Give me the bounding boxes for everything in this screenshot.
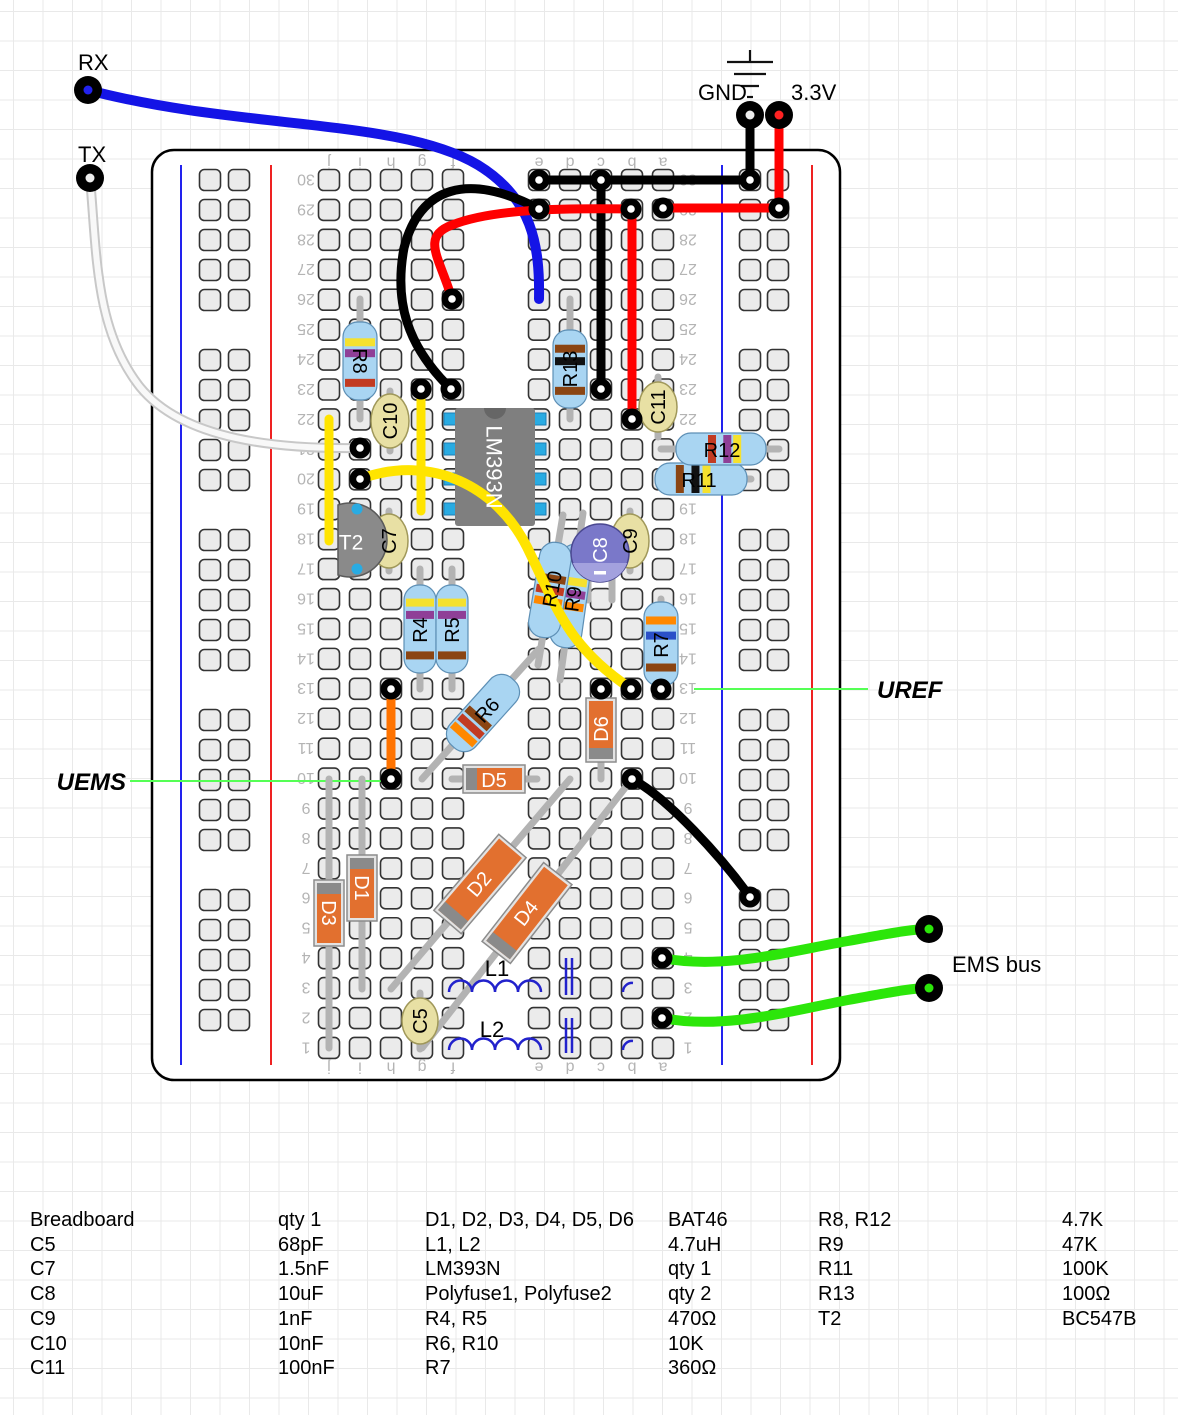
breadboard-hole <box>768 890 789 911</box>
breadboard-hole <box>591 618 612 639</box>
cathode-band <box>466 768 477 790</box>
breadboard-hole <box>653 768 674 789</box>
breadboard-hole <box>740 530 761 551</box>
svg-text:L2: L2 <box>480 1017 504 1042</box>
breadboard-hole <box>768 980 789 1001</box>
row-number-left: 8 <box>301 829 310 846</box>
breadboard-hole <box>229 350 250 371</box>
breadboard-hole <box>529 948 550 969</box>
row-number-right: 28 <box>679 230 697 247</box>
breadboard-hole <box>229 470 250 491</box>
wire-end-ring <box>529 199 550 220</box>
breadboard-hole <box>591 439 612 460</box>
tx-pin <box>76 164 104 192</box>
row-number-right: 13 <box>679 679 697 696</box>
breadboard-hole <box>350 589 371 610</box>
svg-text:C7: C7 <box>379 528 401 554</box>
breadboard-hole <box>381 349 402 370</box>
breadboard-hole <box>560 738 581 759</box>
breadboard-hole <box>768 710 789 731</box>
breadboard-hole <box>768 410 789 431</box>
breadboard-hole <box>381 1008 402 1029</box>
breadboard-hole <box>443 319 464 340</box>
breadboard-hole <box>319 259 340 280</box>
breadboard-hole <box>653 1037 674 1058</box>
breadboard-hole <box>200 560 221 581</box>
row-number-right: 15 <box>679 619 697 636</box>
row-number-left: 12 <box>297 709 315 726</box>
row-number-right: 17 <box>679 559 697 576</box>
breadboard-hole <box>529 379 550 400</box>
wire-end-ring <box>740 887 761 908</box>
breadboard-hole <box>622 589 643 610</box>
breadboard-hole <box>229 380 250 401</box>
breadboard-hole <box>653 229 674 250</box>
breadboard-hole <box>768 380 789 401</box>
breadboard-hole <box>381 888 402 909</box>
breadboard-hole <box>200 230 221 251</box>
breadboard-hole <box>412 259 433 280</box>
breadboard-hole <box>591 978 612 999</box>
breadboard-hole <box>768 740 789 761</box>
breadboard-hole <box>529 1008 550 1029</box>
breadboard-hole <box>229 950 250 971</box>
svg-text:C5: C5 <box>410 1008 432 1034</box>
gnd-pin <box>736 101 764 129</box>
breadboard-hole <box>229 980 250 1001</box>
wire-end-ring <box>622 409 643 430</box>
wire-end-ring <box>350 438 371 459</box>
breadboard-hole <box>381 589 402 610</box>
wire-end-ring <box>411 379 432 400</box>
breadboard-hole <box>653 349 674 370</box>
column-letter-top: j <box>327 153 332 170</box>
wire-end-ring <box>591 170 612 191</box>
breadboard-hole <box>740 830 761 851</box>
row-number-right: 5 <box>683 919 692 936</box>
breadboard-hole <box>350 708 371 729</box>
breadboard-hole <box>768 230 789 251</box>
svg-text:D6: D6 <box>591 716 613 742</box>
svg-text:R11: R11 <box>681 470 716 492</box>
breadboard-hole <box>768 260 789 281</box>
row-number-right: 7 <box>683 859 692 876</box>
breadboard-hole <box>200 920 221 941</box>
breadboard-hole <box>229 230 250 251</box>
column-letter-top: d <box>566 153 575 170</box>
svg-text:R8: R8 <box>348 348 370 374</box>
ems-pin-1 <box>915 915 943 943</box>
row-number-left: 15 <box>297 619 315 636</box>
row-number-right: 10 <box>679 769 697 786</box>
breadboard-hole <box>622 948 643 969</box>
breadboard-hole <box>229 830 250 851</box>
breadboard-hole <box>229 530 250 551</box>
column-letter-bottom: h <box>387 1058 396 1075</box>
breadboard-hole <box>591 589 612 610</box>
breadboard-hole <box>653 918 674 939</box>
breadboard-hole <box>350 170 371 191</box>
breadboard-hole <box>768 770 789 791</box>
row-number-right: 1 <box>683 1038 692 1055</box>
svg-text:D1: D1 <box>350 875 372 901</box>
breadboard-hole <box>768 800 789 821</box>
breadboard-hole <box>653 289 674 310</box>
column-letter-bottom: e <box>534 1058 543 1075</box>
column-letter-top: g <box>418 153 427 170</box>
label-L1: L1 <box>485 956 509 981</box>
row-number-left: 28 <box>297 230 315 247</box>
breadboard-hole <box>622 858 643 879</box>
row-number-left: 14 <box>297 649 315 666</box>
label-R5: R5 <box>442 617 464 643</box>
breadboard-hole <box>350 259 371 280</box>
breadboard-hole <box>529 678 550 699</box>
breadboard-hole <box>412 738 433 759</box>
label-C9: C9 <box>620 528 642 554</box>
ems-pin-2 <box>915 974 943 1002</box>
breadboard-hole <box>740 290 761 311</box>
label-R7: R7 <box>651 632 673 658</box>
breadboard-hole <box>319 170 340 191</box>
breadboard-hole <box>200 290 221 311</box>
breadboard-hole <box>443 858 464 879</box>
breadboard-hole <box>622 708 643 729</box>
breadboard-hole <box>443 199 464 220</box>
svg-text:C8: C8 <box>590 537 612 563</box>
breadboard-hole <box>229 1010 250 1031</box>
row-number-left: 20 <box>297 470 315 487</box>
row-number-right: 14 <box>679 649 697 666</box>
breadboard-hole <box>319 678 340 699</box>
row-number-left: 17 <box>297 559 315 576</box>
breadboard-hole <box>200 170 221 191</box>
svg-text:UEMS: UEMS <box>57 769 126 796</box>
breadboard-hole <box>200 470 221 491</box>
svg-text:GND: GND <box>698 80 747 105</box>
row-number-right: 18 <box>679 530 697 547</box>
breadboard-hole <box>350 1037 371 1058</box>
breadboard-hole <box>768 560 789 581</box>
wire-end-ring <box>529 170 550 191</box>
breadboard-hole <box>200 620 221 641</box>
breadboard-hole <box>740 620 761 641</box>
label-D3: D3 <box>317 900 339 926</box>
breadboard-hole <box>653 978 674 999</box>
row-number-left: 27 <box>297 260 315 277</box>
breadboard-hole <box>560 918 581 939</box>
svg-text:T2: T2 <box>339 531 364 554</box>
breadboard-hole <box>740 350 761 371</box>
svg-text:LM393N: LM393N <box>481 425 506 508</box>
label-R8: R8 <box>348 348 370 374</box>
breadboard-hole <box>740 410 761 431</box>
breadboard-hole <box>740 770 761 791</box>
breadboard-hole <box>768 650 789 671</box>
row-number-left: 22 <box>297 410 315 427</box>
row-number-left: 26 <box>297 290 315 307</box>
breadboard-hole <box>200 980 221 1001</box>
breadboard-hole <box>200 380 221 401</box>
label-C11: C11 <box>648 389 670 424</box>
breadboard-hole <box>381 199 402 220</box>
breadboard-hole <box>560 469 581 490</box>
breadboard-hole <box>200 200 221 221</box>
wire-end-ring <box>621 679 642 700</box>
breadboard-hole <box>412 289 433 310</box>
breadboard-hole <box>229 800 250 821</box>
breadboard-hole <box>740 800 761 821</box>
svg-text:R7: R7 <box>651 632 673 658</box>
breadboard-hole <box>622 439 643 460</box>
row-number-left: 19 <box>297 500 315 517</box>
label-UEMS: UEMS <box>57 769 126 796</box>
breadboard-hole <box>529 738 550 759</box>
breadboard-hole <box>381 229 402 250</box>
breadboard-hole <box>653 529 674 550</box>
label-UREF: UREF <box>877 677 944 704</box>
breadboard-hole <box>768 590 789 611</box>
transistor-pin-dot <box>352 504 363 515</box>
wire-end-ring <box>769 198 790 219</box>
breadboard-hole <box>229 710 250 731</box>
breadboard-hole <box>200 260 221 281</box>
breadboard-hole <box>229 560 250 581</box>
wire-end-ring <box>350 469 371 490</box>
row-number-right: 26 <box>679 290 697 307</box>
row-number-right: 11 <box>680 739 697 756</box>
row-number-left: 2 <box>301 1008 310 1025</box>
label-D1: D1 <box>350 875 372 901</box>
breadboard-hole <box>412 170 433 191</box>
column-letter-bottom: f <box>450 1058 455 1075</box>
breadboard-hole <box>319 289 340 310</box>
breadboard-hole <box>740 230 761 251</box>
breadboard-hole <box>622 888 643 909</box>
breadboard-hole <box>529 319 550 340</box>
wire-end-ring <box>442 289 463 310</box>
label-GND: GND <box>698 80 747 105</box>
breadboard-hole <box>229 890 250 911</box>
breadboard-hole <box>350 678 371 699</box>
breadboard-hole <box>622 469 643 490</box>
svg-text:UREF: UREF <box>877 677 944 704</box>
column-letter-bottom: g <box>418 1058 427 1075</box>
breadboard-hole <box>622 798 643 819</box>
row-number-left: 4 <box>301 949 310 966</box>
breadboard-hole <box>200 950 221 971</box>
breadboard-hole <box>768 620 789 641</box>
breadboard-hole <box>622 618 643 639</box>
breadboard-hole <box>319 319 340 340</box>
breadboard-hole <box>591 888 612 909</box>
svg-text:C10: C10 <box>380 403 402 440</box>
wire-end-ring <box>622 769 643 790</box>
breadboard-hole <box>229 620 250 641</box>
rx-pin <box>74 76 102 104</box>
breadboard-hole <box>622 1008 643 1029</box>
breadboard-hole <box>200 530 221 551</box>
breadboard-hole <box>591 469 612 490</box>
breadboard-hole <box>768 830 789 851</box>
breadboard-hole <box>229 740 250 761</box>
breadboard-hole <box>229 170 250 191</box>
breadboard-diagram: 1122334455667788991010111112121313141415… <box>0 0 1178 1415</box>
breadboard-hole <box>200 740 221 761</box>
row-number-left: 25 <box>297 320 315 337</box>
breadboard-hole <box>653 559 674 580</box>
svg-text:TX: TX <box>78 142 106 167</box>
breadboard-hole <box>229 650 250 671</box>
row-number-right: 23 <box>679 380 697 397</box>
breadboard-hole <box>622 918 643 939</box>
breadboard-hole <box>412 858 433 879</box>
svg-text:RX: RX <box>78 50 109 75</box>
breadboard-hole <box>229 410 250 431</box>
column-letter-top: a <box>658 153 667 170</box>
breadboard-hole <box>350 1008 371 1029</box>
breadboard-hole <box>200 350 221 371</box>
row-number-right: 19 <box>679 500 697 517</box>
breadboard-hole <box>381 618 402 639</box>
breadboard-hole <box>768 920 789 941</box>
breadboard-hole <box>381 648 402 669</box>
breadboard-hole <box>381 918 402 939</box>
label-C7: C7 <box>379 528 401 554</box>
row-number-right: 3 <box>683 979 692 996</box>
column-letter-top: b <box>627 153 636 170</box>
breadboard-hole <box>622 828 643 849</box>
row-number-left: 23 <box>297 380 315 397</box>
breadboard-hole <box>200 890 221 911</box>
row-number-right: 27 <box>679 260 697 277</box>
breadboard-hole <box>768 350 789 371</box>
breadboard-hole <box>319 379 340 400</box>
wire-end-ring <box>652 948 673 969</box>
column-letter-bottom: i <box>358 1058 362 1075</box>
breadboard-hole <box>560 798 581 819</box>
row-number-left: 6 <box>301 889 310 906</box>
breadboard-hole <box>200 800 221 821</box>
diagram-svg: 1122334455667788991010111112121313141415… <box>0 0 1178 1415</box>
breadboard-hole <box>591 948 612 969</box>
label-C8: C8 <box>590 537 612 563</box>
breadboard-hole <box>412 798 433 819</box>
breadboard-hole <box>381 798 402 819</box>
column-letter-top: e <box>534 153 543 170</box>
breadboard-hole <box>740 710 761 731</box>
label-R11: R11 <box>681 470 716 492</box>
row-number-right: 12 <box>679 709 697 726</box>
wire-end-ring <box>591 679 612 700</box>
breadboard-hole <box>560 229 581 250</box>
row-number-left: 18 <box>297 530 315 547</box>
wire-end-ring <box>621 199 642 220</box>
breadboard-hole <box>740 380 761 401</box>
breadboard-hole <box>381 170 402 191</box>
label-R9: R9 <box>561 585 586 613</box>
breadboard-hole <box>200 1010 221 1031</box>
svg-text:R5: R5 <box>442 617 464 643</box>
breadboard-hole <box>229 200 250 221</box>
row-number-left: 7 <box>301 859 310 876</box>
breadboard-hole <box>591 918 612 939</box>
label-C10: C10 <box>380 403 402 440</box>
breadboard-hole <box>381 828 402 849</box>
label-LM393N: LM393N <box>481 425 506 508</box>
breadboard-hole <box>443 828 464 849</box>
svg-text:C11: C11 <box>648 389 670 424</box>
breadboard-hole <box>560 1008 581 1029</box>
row-number-left: 30 <box>297 170 315 187</box>
row-number-right: 25 <box>679 320 697 337</box>
row-number-left: 24 <box>297 350 315 367</box>
breadboard-hole <box>529 1037 550 1058</box>
wire-end-ring <box>653 198 674 219</box>
breadboard-hole <box>412 828 433 849</box>
wire-end-ring <box>591 379 612 400</box>
breadboard-hole <box>560 259 581 280</box>
label-T2: T2 <box>339 531 364 554</box>
transistor-pin-dot <box>352 564 363 575</box>
breadboard-hole <box>653 858 674 879</box>
row-number-left: 1 <box>301 1038 310 1055</box>
breadboard-hole <box>622 648 643 669</box>
label-D6: D6 <box>591 716 613 742</box>
breadboard-hole <box>560 948 581 969</box>
breadboard-hole <box>591 858 612 879</box>
label-3V3: 3.3V <box>791 80 837 105</box>
breadboard-hole <box>319 229 340 250</box>
breadboard-hole <box>740 650 761 671</box>
breadboard-hole <box>229 590 250 611</box>
breadboard-hole <box>381 319 402 340</box>
svg-text:R12: R12 <box>704 440 741 462</box>
svg-text:D5: D5 <box>481 770 507 792</box>
breadboard-hole <box>381 1037 402 1058</box>
breadboard-hole <box>529 349 550 370</box>
wire-end-ring <box>740 170 761 191</box>
label-TX: TX <box>78 142 106 167</box>
breadboard-hole <box>412 708 433 729</box>
breadboard-hole <box>443 529 464 550</box>
breadboard-hole <box>319 618 340 639</box>
breadboard-hole <box>591 499 612 520</box>
row-number-right: 16 <box>679 589 697 606</box>
wire-end-ring <box>381 769 402 790</box>
svg-text:EMS bus: EMS bus <box>952 952 1041 977</box>
breadboard-hole <box>381 858 402 879</box>
row-number-right: 9 <box>683 799 692 816</box>
wire-end-ring <box>381 679 402 700</box>
column-letter-top: h <box>387 153 396 170</box>
breadboard-hole <box>560 439 581 460</box>
breadboard-hole <box>768 530 789 551</box>
cathode-band <box>350 858 374 869</box>
breadboard-hole <box>229 920 250 941</box>
row-number-right: 24 <box>679 350 697 367</box>
svg-text:D3: D3 <box>317 900 339 926</box>
breadboard-hole <box>412 918 433 939</box>
row-number-left: 29 <box>297 200 315 217</box>
row-number-left: 5 <box>301 919 310 936</box>
svg-text:R9: R9 <box>561 585 586 613</box>
breadboard-hole <box>412 229 433 250</box>
breadboard-hole <box>740 920 761 941</box>
breadboard-hole <box>350 648 371 669</box>
svg-text:L1: L1 <box>485 956 509 981</box>
breadboard-hole <box>768 290 789 311</box>
